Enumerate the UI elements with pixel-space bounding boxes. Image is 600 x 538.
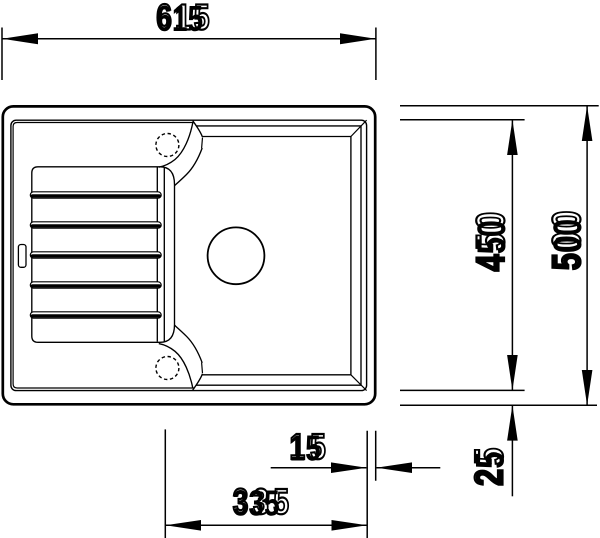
svg-text:450: 450 [470,220,515,271]
svg-text:615: 615 [156,0,203,39]
svg-text:25: 25 [468,452,513,486]
svg-text:15: 15 [290,428,321,468]
svg-text:500: 500 [545,219,590,270]
svg-text:335: 335 [233,483,280,523]
